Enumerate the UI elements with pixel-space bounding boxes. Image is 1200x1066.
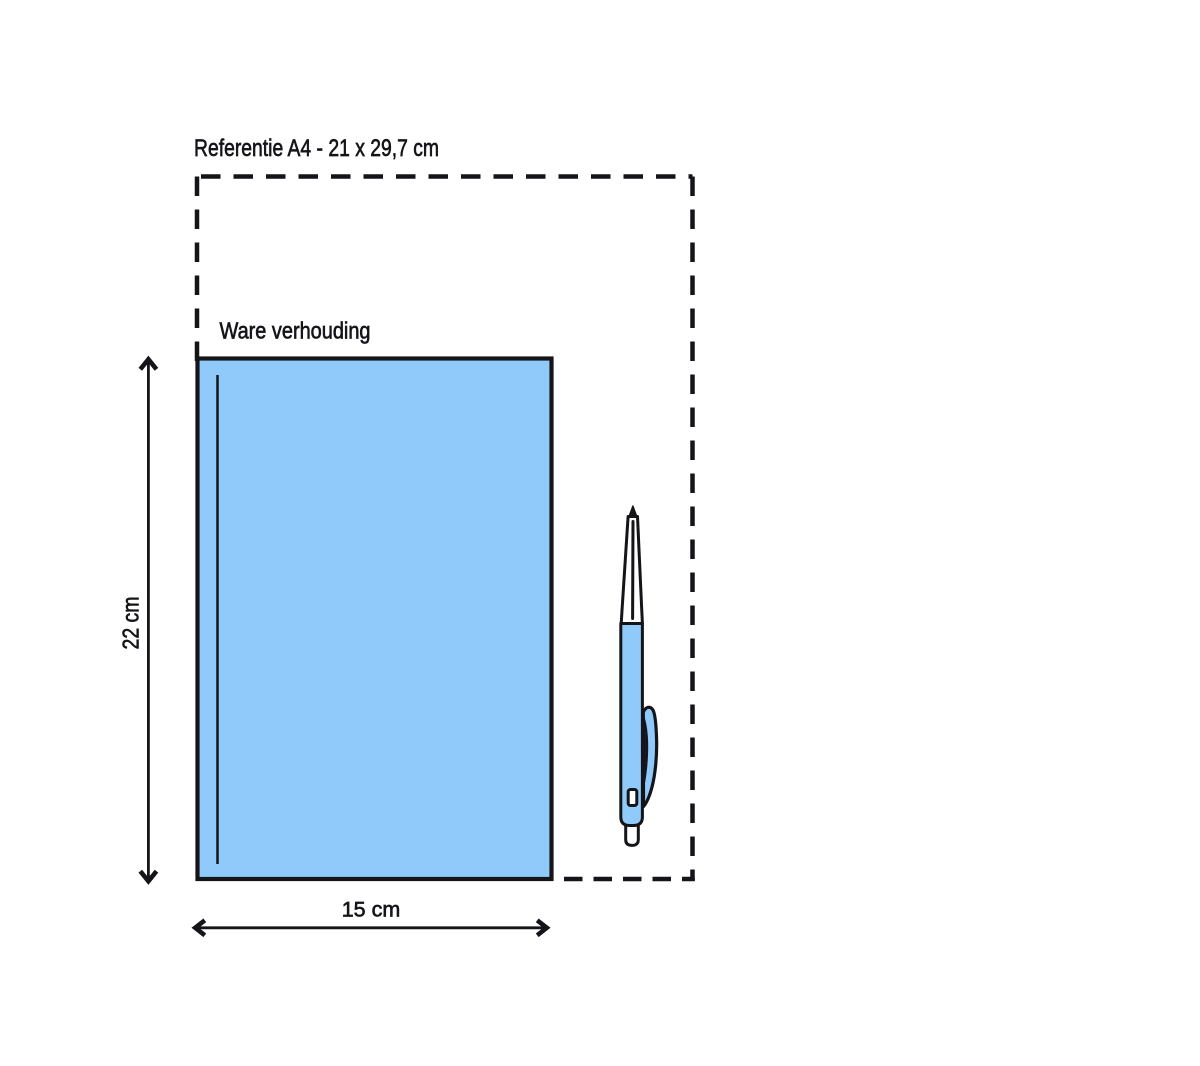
svg-text:Ware verhouding: Ware verhouding <box>220 318 371 344</box>
svg-text:15 cm: 15 cm <box>342 898 401 922</box>
svg-text:22 cm: 22 cm <box>118 597 144 650</box>
svg-text:Referentie A4 - 21 x 29,7 cm: Referentie A4 - 21 x 29,7 cm <box>194 135 439 162</box>
